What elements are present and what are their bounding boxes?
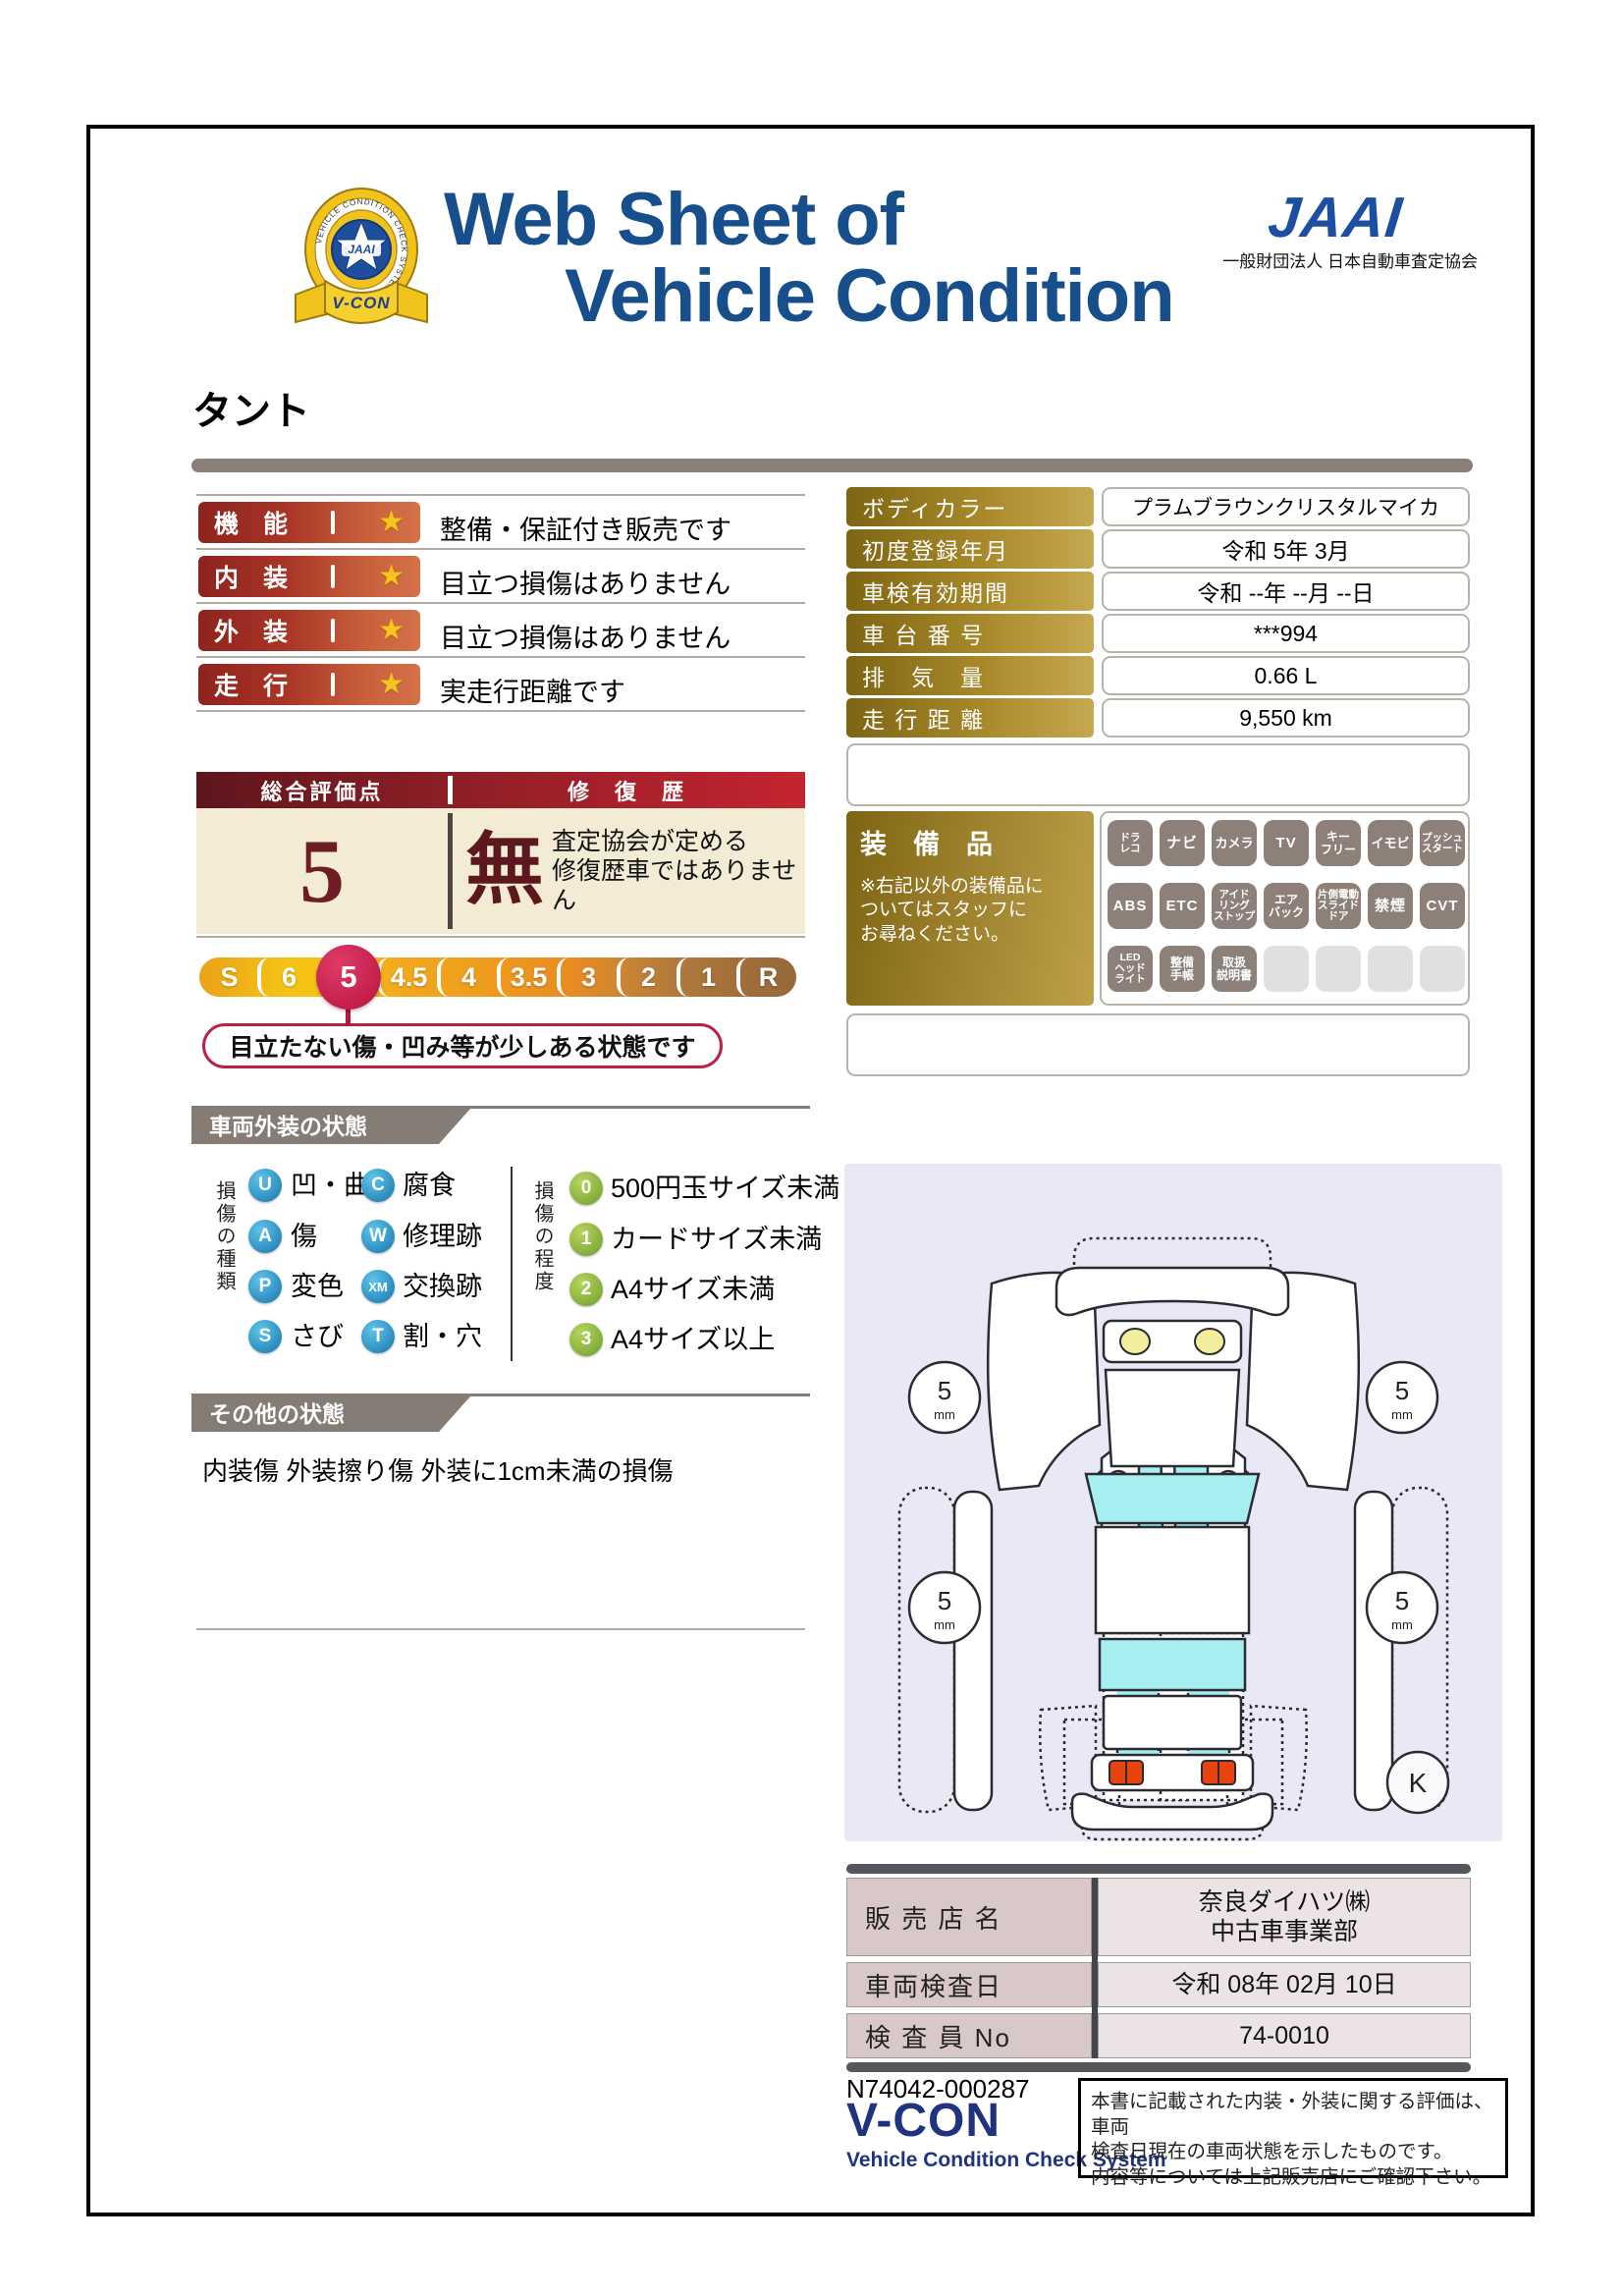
tread-value: 5 bbox=[938, 1376, 951, 1405]
separator-line bbox=[196, 548, 805, 550]
inspection-date-label: 車両検査日 bbox=[846, 1962, 1092, 2007]
front-bumper bbox=[1056, 1268, 1288, 1315]
divider bbox=[448, 776, 453, 804]
equipment-badge-ledheadlight: LED ヘッド ライト bbox=[1108, 946, 1153, 992]
equipment-badge-etc: ETC bbox=[1160, 883, 1205, 929]
damage-type-label: 交換跡 bbox=[403, 1270, 482, 1303]
hood bbox=[1106, 1370, 1239, 1466]
overall-score-heading: 総合評価点 bbox=[196, 772, 448, 808]
damage-type-label: 傷 bbox=[291, 1220, 317, 1253]
info-value-inspection-validity: 令和 --年 --月 --日 bbox=[1102, 572, 1470, 611]
tailgate bbox=[1104, 1696, 1241, 1749]
damage-type-icon-t: T bbox=[361, 1320, 395, 1353]
damage-degree-label: A4サイズ以上 bbox=[611, 1323, 775, 1356]
exterior-section-title: 車両外装の状態 bbox=[191, 1109, 439, 1144]
star-icon: ★ bbox=[378, 670, 405, 699]
headlight-right-icon bbox=[1195, 1329, 1224, 1354]
headlight-left-icon bbox=[1120, 1329, 1150, 1354]
damage-type-label: 割・穴 bbox=[403, 1320, 482, 1353]
damage-type-label: 凹・曲 bbox=[291, 1169, 370, 1202]
table-divider bbox=[1092, 1878, 1098, 2058]
equipment-badge-keyfree: キー フリー bbox=[1316, 820, 1361, 866]
equipment-badge-nonsmoking: 禁煙 bbox=[1368, 883, 1413, 929]
info-label-body-color: ボディカラー bbox=[846, 487, 1094, 526]
equipment-badge-airbag: エア バック bbox=[1264, 883, 1309, 929]
repair-history-value: 無 bbox=[465, 832, 544, 910]
info-value-first-registration: 令和 5年 3月 bbox=[1102, 529, 1470, 569]
separator-line bbox=[196, 1628, 805, 1630]
star-icon: ★ bbox=[378, 616, 405, 645]
dealer-name-value: 奈良ダイハツ㈱ 中古車事業部 bbox=[1098, 1878, 1471, 1956]
equipment-badge-dorareco: ドラ レコ bbox=[1108, 820, 1153, 866]
damage-degree-icon-3: 3 bbox=[569, 1323, 603, 1356]
divider bbox=[331, 511, 335, 534]
damage-degree-label: 500円玉サイズ未満 bbox=[611, 1172, 839, 1205]
rating-bar-exterior: 外 装 ★ bbox=[198, 610, 420, 651]
scale-grade: 3.5 bbox=[499, 957, 559, 997]
damage-degree-axis-label: 損傷の程度 bbox=[528, 1180, 557, 1293]
divider bbox=[331, 673, 335, 696]
separator-line bbox=[196, 936, 805, 938]
equipment-note: ※右記以外の装備品に ついてはスタッフに お尋ねください。 bbox=[860, 875, 1080, 947]
scale-grade: 6 bbox=[259, 957, 319, 997]
rating-label: 外 装 bbox=[214, 613, 288, 648]
overall-evaluation-body: 5 無 査定協会が定める 修復歴車ではありません bbox=[196, 808, 805, 934]
tread-unit: mm bbox=[1391, 1617, 1413, 1632]
scale-grade: 4.5 bbox=[379, 957, 439, 997]
scale-grade: 4 bbox=[439, 957, 499, 997]
damage-type-label: 腐食 bbox=[403, 1169, 456, 1202]
tread-unit: mm bbox=[1391, 1407, 1413, 1422]
scale-grade: 2 bbox=[619, 957, 678, 997]
rating-label: 機 能 bbox=[214, 505, 288, 540]
star-icon: ★ bbox=[378, 508, 405, 537]
other-condition-text: 内装傷 外装擦り傷 外装に1cm未満の損傷 bbox=[202, 1451, 674, 1488]
equipment-badge-cvt: CVT bbox=[1420, 883, 1465, 929]
equipment-title: 装 備 品 bbox=[860, 823, 1080, 861]
dealer-name-label: 販 売 店 名 bbox=[846, 1878, 1092, 1956]
corner-mark: K bbox=[1409, 1768, 1428, 1798]
empty-remarks-box bbox=[846, 743, 1470, 806]
equipment-badge-immobilizer: イモビ bbox=[1368, 820, 1413, 866]
side-sill-outline bbox=[899, 1488, 954, 1812]
scale-grade: 1 bbox=[678, 957, 738, 997]
damage-type-icon-p: P bbox=[248, 1270, 282, 1303]
divider bbox=[448, 813, 453, 929]
damage-type-label: 変色 bbox=[291, 1270, 344, 1303]
tread-value: 5 bbox=[1395, 1376, 1409, 1405]
equipment-badge-empty bbox=[1420, 946, 1465, 992]
sheet-title-line2: Vehicle Condition bbox=[565, 253, 1174, 339]
damage-type-axis-label: 損傷の種類 bbox=[210, 1180, 239, 1293]
equipment-badge-idlingstop: アイド リング ストップ bbox=[1212, 883, 1257, 929]
equipment-badge-abs: ABS bbox=[1108, 883, 1153, 929]
tread-unit: mm bbox=[934, 1617, 955, 1632]
damage-degree-icon-0: 0 bbox=[569, 1172, 603, 1205]
rating-bar-mileage: 走 行 ★ bbox=[198, 664, 420, 705]
inspection-date-value: 令和 08年 02月 10日 bbox=[1098, 1962, 1471, 2007]
rating-comment: 目立つ損傷はありません bbox=[440, 617, 730, 655]
emblem-ribbon-text: V-CON bbox=[332, 294, 390, 312]
jaai-logo: JAAI bbox=[1265, 185, 1405, 250]
info-value-chassis-number: ***994 bbox=[1102, 614, 1470, 653]
vehicle-condition-sheet: VEHICLE CONDITION CHECK SYSTEM JAAI V-CO… bbox=[0, 0, 1623, 2296]
separator-line bbox=[196, 710, 805, 712]
separator-line bbox=[196, 656, 805, 658]
info-label-chassis-number: 車 台 番 号 bbox=[846, 614, 1094, 653]
rear-window bbox=[1100, 1639, 1245, 1690]
table-bottom-bar bbox=[846, 2062, 1471, 2072]
info-value-displacement: 0.66 L bbox=[1102, 656, 1470, 695]
info-label-inspection-validity: 車検有効期間 bbox=[846, 572, 1094, 611]
divider bbox=[331, 565, 335, 588]
grade-description-callout: 目立たない傷・凹み等が少しある状態です bbox=[202, 1023, 723, 1068]
damage-type-icon-a: A bbox=[248, 1220, 282, 1253]
inspector-no-label: 検 査 員 No bbox=[846, 2013, 1092, 2058]
damage-degree-icon-1: 1 bbox=[569, 1223, 603, 1256]
star-icon: ★ bbox=[378, 562, 405, 591]
damage-type-icon-w: W bbox=[361, 1220, 395, 1253]
rating-comment: 整備・保証付き販売です bbox=[440, 509, 731, 547]
repair-history-heading: 修 復 歴 bbox=[448, 772, 805, 808]
vehicle-name: タント bbox=[192, 379, 310, 436]
equipment-badge-empty bbox=[1316, 946, 1361, 992]
side-sill bbox=[954, 1492, 992, 1810]
equipment-badge-navi: ナビ bbox=[1160, 820, 1205, 866]
equipment-panel: 装 備 品 ※右記以外の装備品に ついてはスタッフに お尋ねください。 bbox=[846, 811, 1094, 1006]
other-section-title: その他の状態 bbox=[191, 1396, 439, 1432]
equipment-badge-powerslidedoor: 片側電動 スライド ドア bbox=[1316, 883, 1361, 929]
sheet-title-line1: Web Sheet of bbox=[444, 177, 903, 262]
damage-type-icon-c: C bbox=[361, 1169, 395, 1202]
emblem-jaai-text: JAAI bbox=[348, 243, 375, 256]
info-value-mileage: 9,550 km bbox=[1102, 698, 1470, 738]
scale-grade: R bbox=[738, 957, 798, 997]
empty-remarks-box bbox=[846, 1013, 1470, 1076]
windshield bbox=[1086, 1474, 1259, 1523]
rating-bar-function: 機 能 ★ bbox=[198, 502, 420, 543]
roof bbox=[1096, 1527, 1249, 1633]
selected-grade-marker: 5 bbox=[316, 945, 381, 1010]
rating-label: 内 装 bbox=[214, 559, 288, 594]
equipment-badge-manual: 取扱 説明書 bbox=[1212, 946, 1257, 992]
info-label-mileage: 走 行 距 離 bbox=[846, 698, 1094, 738]
vcon-logo: V-CON bbox=[846, 2094, 1001, 2148]
separator-line bbox=[196, 602, 805, 604]
disclaimer-box: 本書に記載された内装・外装に関する評価は、車両 検査日現在の車両状態を示したもの… bbox=[1078, 2078, 1508, 2178]
damage-type-label: さび bbox=[291, 1320, 344, 1353]
damage-type-label: 修理跡 bbox=[403, 1220, 482, 1253]
damage-degree-label: カードサイズ未満 bbox=[611, 1223, 822, 1256]
rating-comment: 実走行距離です bbox=[440, 671, 625, 709]
tread-value: 5 bbox=[938, 1586, 951, 1615]
tread-value: 5 bbox=[1395, 1586, 1409, 1615]
equipment-badge-empty bbox=[1368, 946, 1413, 992]
equipment-badge-camera: カメラ bbox=[1212, 820, 1257, 866]
rating-comment: 目立つ損傷はありません bbox=[440, 563, 730, 601]
damage-type-icon-xm: XM bbox=[361, 1270, 395, 1303]
scale-grade: 3 bbox=[559, 957, 619, 997]
damage-degree-icon-2: 2 bbox=[569, 1273, 603, 1306]
inspector-no-value: 74-0010 bbox=[1098, 2013, 1471, 2058]
equipment-badge-tv: TV bbox=[1264, 820, 1309, 866]
vcon-emblem-logo: VEHICLE CONDITION CHECK SYSTEM JAAI V-CO… bbox=[288, 185, 435, 347]
rating-label: 走 行 bbox=[214, 667, 288, 702]
equipment-badge-maintenancebook: 整備 手帳 bbox=[1160, 946, 1205, 992]
damage-type-icon-s: S bbox=[248, 1320, 282, 1353]
info-value-body-color: プラムブラウンクリスタルマイカ bbox=[1102, 487, 1470, 526]
table-top-bar bbox=[846, 1864, 1471, 1874]
jaai-organization-name: 一般財団法人 日本自動車査定協会 bbox=[1173, 247, 1478, 272]
rating-bar-interior: 内 装 ★ bbox=[198, 556, 420, 597]
damage-degree-label: A4サイズ未満 bbox=[611, 1273, 775, 1306]
info-label-displacement: 排 気 量 bbox=[846, 656, 1094, 695]
scale-grade: S bbox=[199, 957, 259, 997]
damage-type-icon-u: U bbox=[248, 1169, 282, 1202]
car-exploded-view: 5 mm 5 mm 5 mm 5 mm K bbox=[844, 1164, 1502, 1841]
overall-score-value: 5 bbox=[196, 808, 448, 934]
callout-stem bbox=[346, 1008, 351, 1025]
tread-unit: mm bbox=[934, 1407, 955, 1422]
info-label-first-registration: 初度登録年月 bbox=[846, 529, 1094, 569]
header-divider-bar bbox=[191, 459, 1473, 472]
separator-line bbox=[196, 494, 805, 496]
overall-evaluation-header: 総合評価点 修 復 歴 bbox=[196, 772, 805, 808]
equipment-badge-pushstart: プッシュ スタート bbox=[1420, 820, 1465, 866]
repair-history-note: 査定協会が定める 修復歴車ではありません bbox=[552, 827, 805, 915]
divider bbox=[331, 619, 335, 642]
equipment-badge-empty bbox=[1264, 946, 1309, 992]
legend-divider bbox=[511, 1167, 513, 1361]
vehicle-exterior-diagram: 5 mm 5 mm 5 mm 5 mm K bbox=[844, 1164, 1502, 1841]
